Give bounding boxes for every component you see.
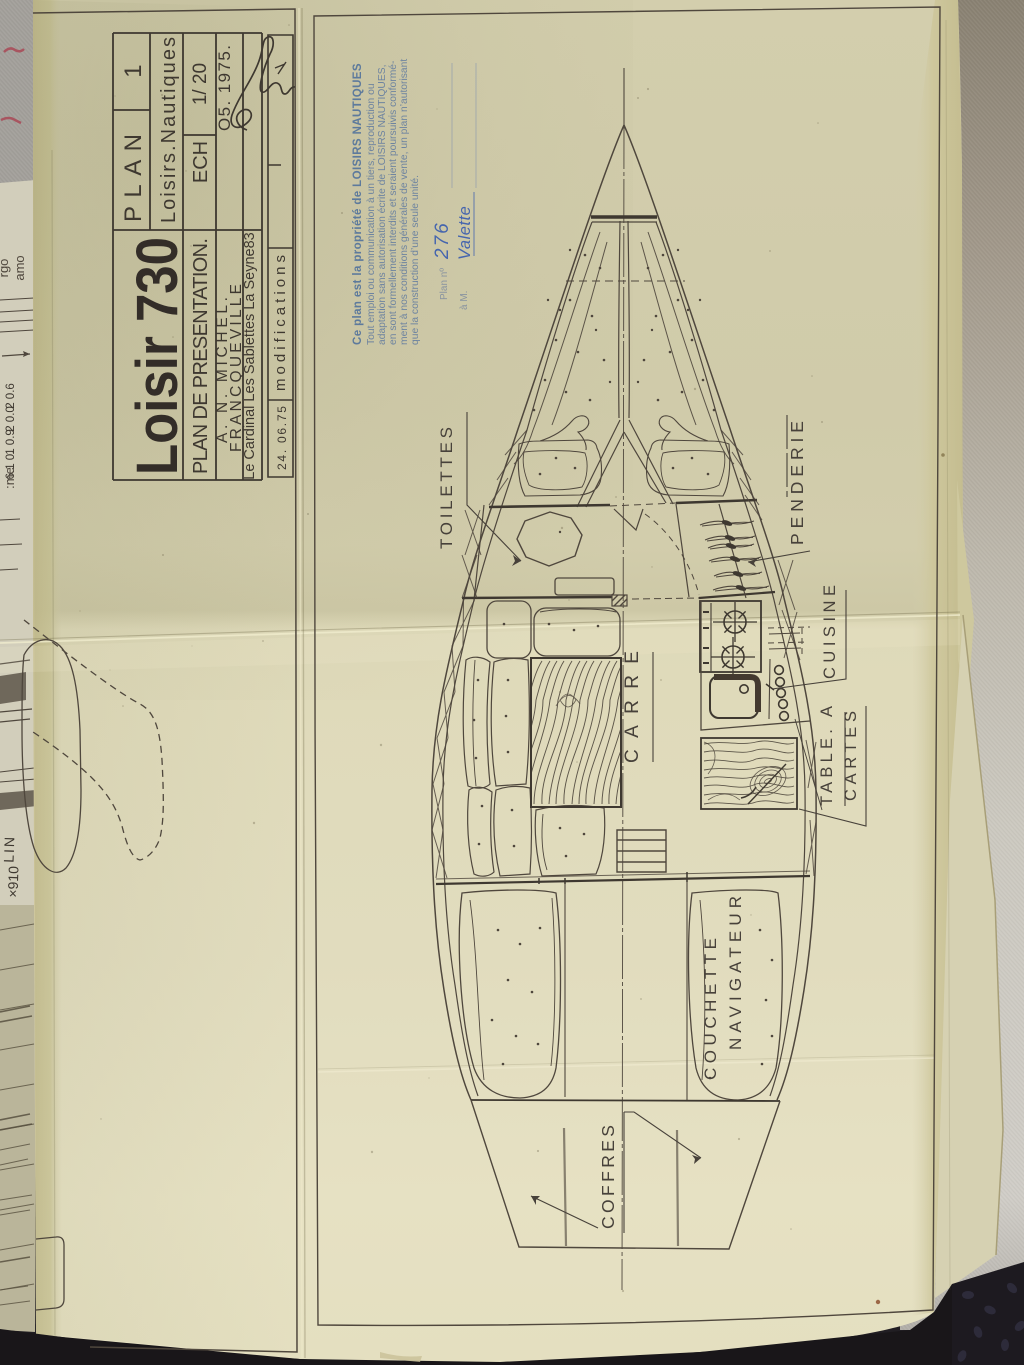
svg-text:que la construction d’une seul: que la construction d’une seule unité. <box>410 175 421 345</box>
svg-text:en sont formellement interdits: en sont formellement interdits et seraie… <box>388 61 399 345</box>
svg-text:NAVIGATEUR: NAVIGATEUR <box>726 896 745 1050</box>
svg-text:24. 06.75: 24. 06.75 <box>275 406 289 470</box>
svg-text:Loisirs.Nautiques: Loisirs.Nautiques <box>158 37 180 223</box>
svg-text:COFFRES: COFFRES <box>598 1125 618 1229</box>
svg-text:PLAN DE PRESENTATION.: PLAN DE PRESENTATION. <box>190 238 212 474</box>
svg-text:Plan nº: Plan nº <box>439 268 450 300</box>
svg-text:à M.: à M. <box>459 291 470 310</box>
svg-text:PENDERIE: PENDERIE <box>787 421 807 545</box>
svg-text:Tout emploi ou communication à: Tout emploi ou communication à un tiers,… <box>366 83 377 345</box>
svg-text:TOILETTES: TOILETTES <box>437 427 456 549</box>
svg-text:Ce plan est la propriété de L: Ce plan est la propriété de LOISIRS NAUT… <box>352 63 364 345</box>
svg-text:LIN: LIN <box>1 835 18 863</box>
svg-text:276: 276 <box>432 221 453 260</box>
svg-text:adaptation sans autorisation é: adaptation sans autorisation écrite de L… <box>377 65 388 345</box>
svg-text:rgo: rgo <box>0 259 11 278</box>
svg-text:2 0.0: 2 0.0 <box>5 406 17 432</box>
svg-text:×910: ×910 <box>4 866 21 898</box>
svg-text:1/ 20: 1/ 20 <box>190 63 211 105</box>
svg-text:ECH: ECH <box>190 141 212 183</box>
svg-text:2 0.6: 2 0.6 <box>5 383 17 409</box>
svg-text:amo: amo <box>12 255 27 280</box>
svg-text:Loisir 730: Loisir 730 <box>125 237 190 475</box>
svg-text:COUCHETTE: COUCHETTE <box>701 938 720 1080</box>
svg-text:Le Cardinal Les Sablettes La S: Le Cardinal Les Sablettes La Seyne83 <box>242 232 258 479</box>
svg-text:Valette: Valette <box>456 206 474 260</box>
svg-text:1: 1 <box>120 64 147 77</box>
svg-text:ment à nos conditions générale: ment à nos conditions générales de vente… <box>399 59 410 345</box>
svg-text::me: :me <box>2 467 17 489</box>
svg-text:modifications: modifications <box>272 255 289 391</box>
